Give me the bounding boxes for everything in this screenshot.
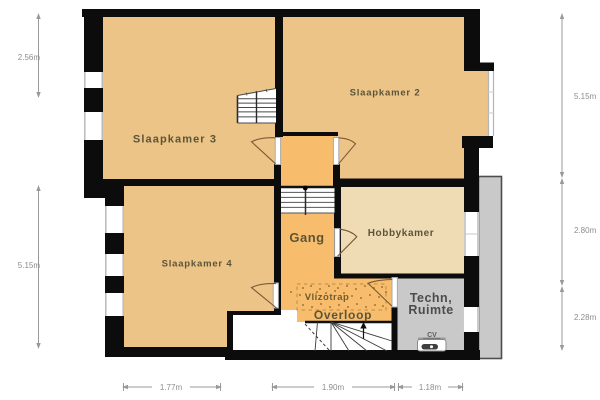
svg-text:Gang: Gang (289, 230, 324, 245)
svg-text:Vlizotrap: Vlizotrap (305, 292, 350, 303)
svg-text:Slaapkamer 3: Slaapkamer 3 (133, 134, 217, 146)
svg-text:5.15m: 5.15m (574, 92, 597, 101)
svg-text:5.15m: 5.15m (18, 261, 41, 270)
svg-text:2.56m: 2.56m (18, 53, 41, 62)
svg-text:1.90m: 1.90m (322, 383, 345, 392)
svg-text:2.80m: 2.80m (574, 226, 597, 235)
svg-text:2.28m: 2.28m (574, 313, 597, 322)
svg-text:1.18m: 1.18m (419, 383, 442, 392)
svg-text:Ruimte: Ruimte (408, 303, 453, 317)
svg-text:1.77m: 1.77m (160, 383, 183, 392)
svg-text:Slaapkamer 2: Slaapkamer 2 (350, 88, 421, 99)
svg-text:Hobbykamer: Hobbykamer (368, 228, 435, 239)
svg-text:Overloop: Overloop (314, 308, 372, 322)
svg-text:Slaapkamer 4: Slaapkamer 4 (162, 259, 233, 270)
